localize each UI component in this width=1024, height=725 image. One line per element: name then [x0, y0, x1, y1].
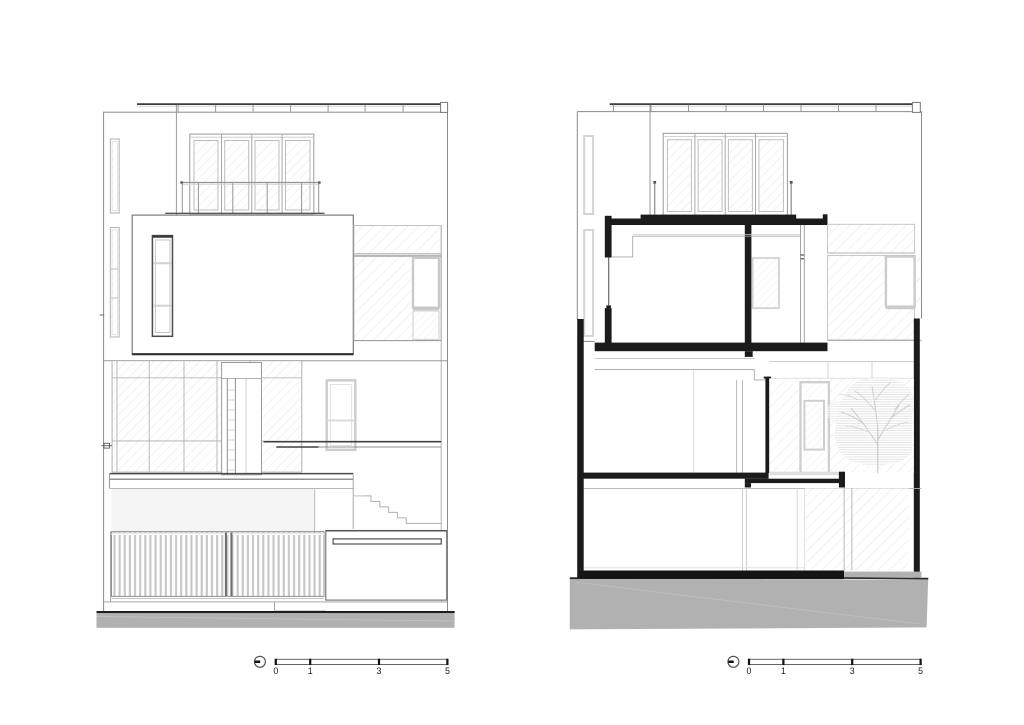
- svg-text:5: 5: [445, 666, 450, 676]
- svg-text:3: 3: [377, 666, 382, 676]
- svg-text:0: 0: [747, 666, 752, 676]
- svg-text:1: 1: [781, 666, 786, 676]
- svg-text:0: 0: [273, 666, 278, 676]
- svg-text:3: 3: [850, 666, 855, 676]
- svg-text:5: 5: [918, 666, 923, 676]
- svg-text:1: 1: [308, 666, 313, 676]
